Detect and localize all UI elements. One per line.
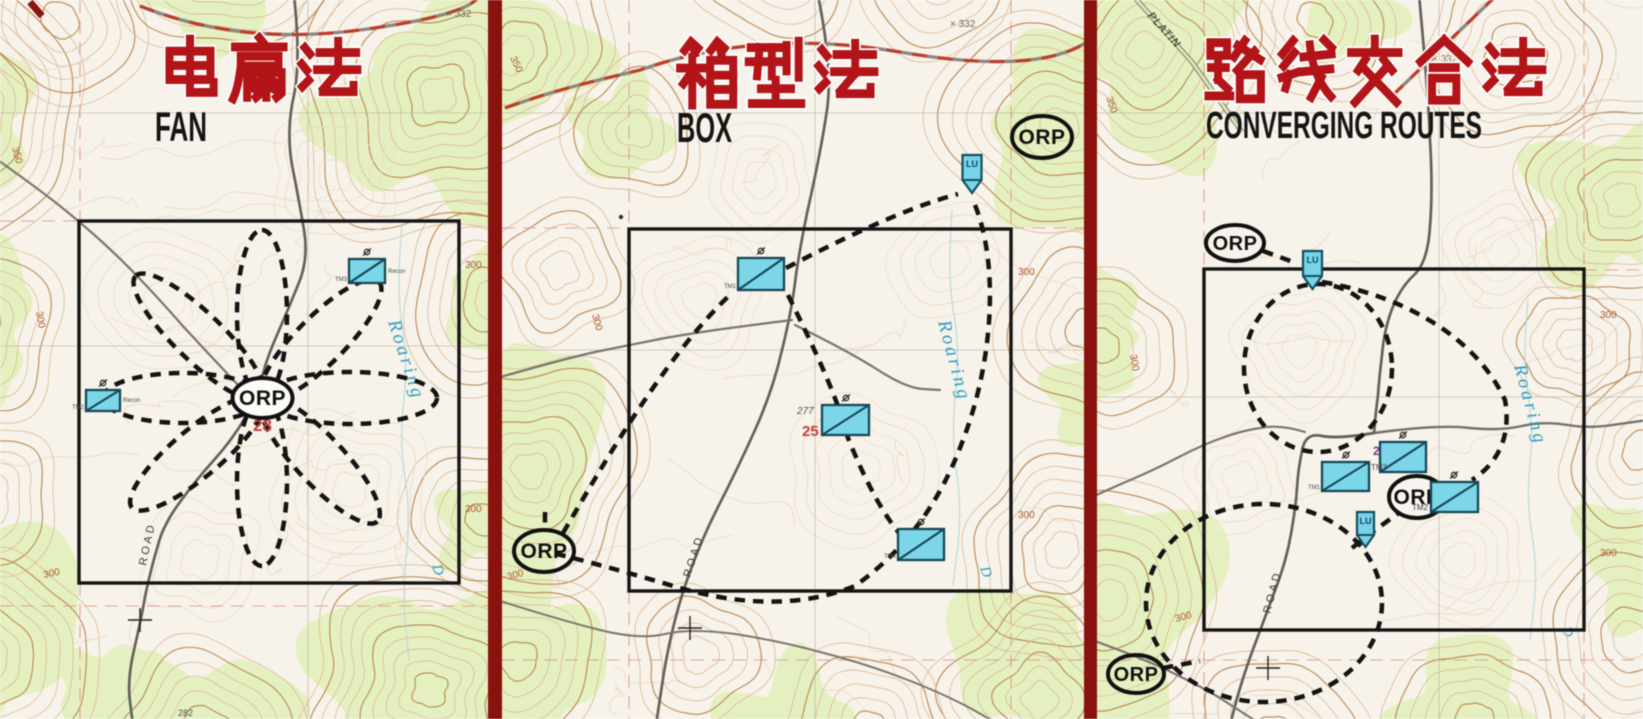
svg-text:ORP: ORP xyxy=(239,387,286,410)
svg-text:300: 300 xyxy=(465,504,482,515)
svg-text:282: 282 xyxy=(178,708,193,718)
svg-text:2: 2 xyxy=(1373,444,1380,458)
svg-text:LU: LU xyxy=(1360,516,1372,526)
svg-text:TM2: TM2 xyxy=(72,405,85,411)
svg-text:300: 300 xyxy=(1600,548,1617,559)
svg-text:TM1: TM1 xyxy=(724,284,737,290)
svg-text:FAN: FAN xyxy=(155,103,207,150)
svg-text:BOX: BOX xyxy=(677,104,732,151)
svg-text:Recon: Recon xyxy=(388,269,405,275)
svg-text:CONVERGING ROUTES: CONVERGING ROUTES xyxy=(1206,105,1482,147)
svg-text:LU: LU xyxy=(1307,255,1319,265)
svg-text:× 332: × 332 xyxy=(446,9,472,20)
svg-text:TM4: TM4 xyxy=(884,554,897,560)
svg-text:25: 25 xyxy=(802,423,819,440)
svg-text:ORP: ORP xyxy=(1213,233,1258,255)
svg-text:× 332: × 332 xyxy=(950,19,976,30)
svg-text:Recon: Recon xyxy=(123,398,140,404)
svg-text:277: 277 xyxy=(796,406,814,417)
svg-text:ORP: ORP xyxy=(1018,126,1065,149)
svg-text:300: 300 xyxy=(465,260,482,271)
svg-text:300: 300 xyxy=(1018,267,1035,278)
svg-text:TM1: TM1 xyxy=(1308,485,1321,491)
svg-text:TM3: TM3 xyxy=(335,277,348,283)
svg-text:300: 300 xyxy=(1600,310,1617,321)
svg-text:LU: LU xyxy=(966,159,978,169)
svg-text:300: 300 xyxy=(1018,510,1035,521)
svg-text:TM2: TM2 xyxy=(1412,503,1429,512)
svg-text:ORP: ORP xyxy=(520,540,567,563)
svg-text:TM3: TM3 xyxy=(1371,463,1388,472)
svg-text:ORP: ORP xyxy=(1114,664,1159,686)
